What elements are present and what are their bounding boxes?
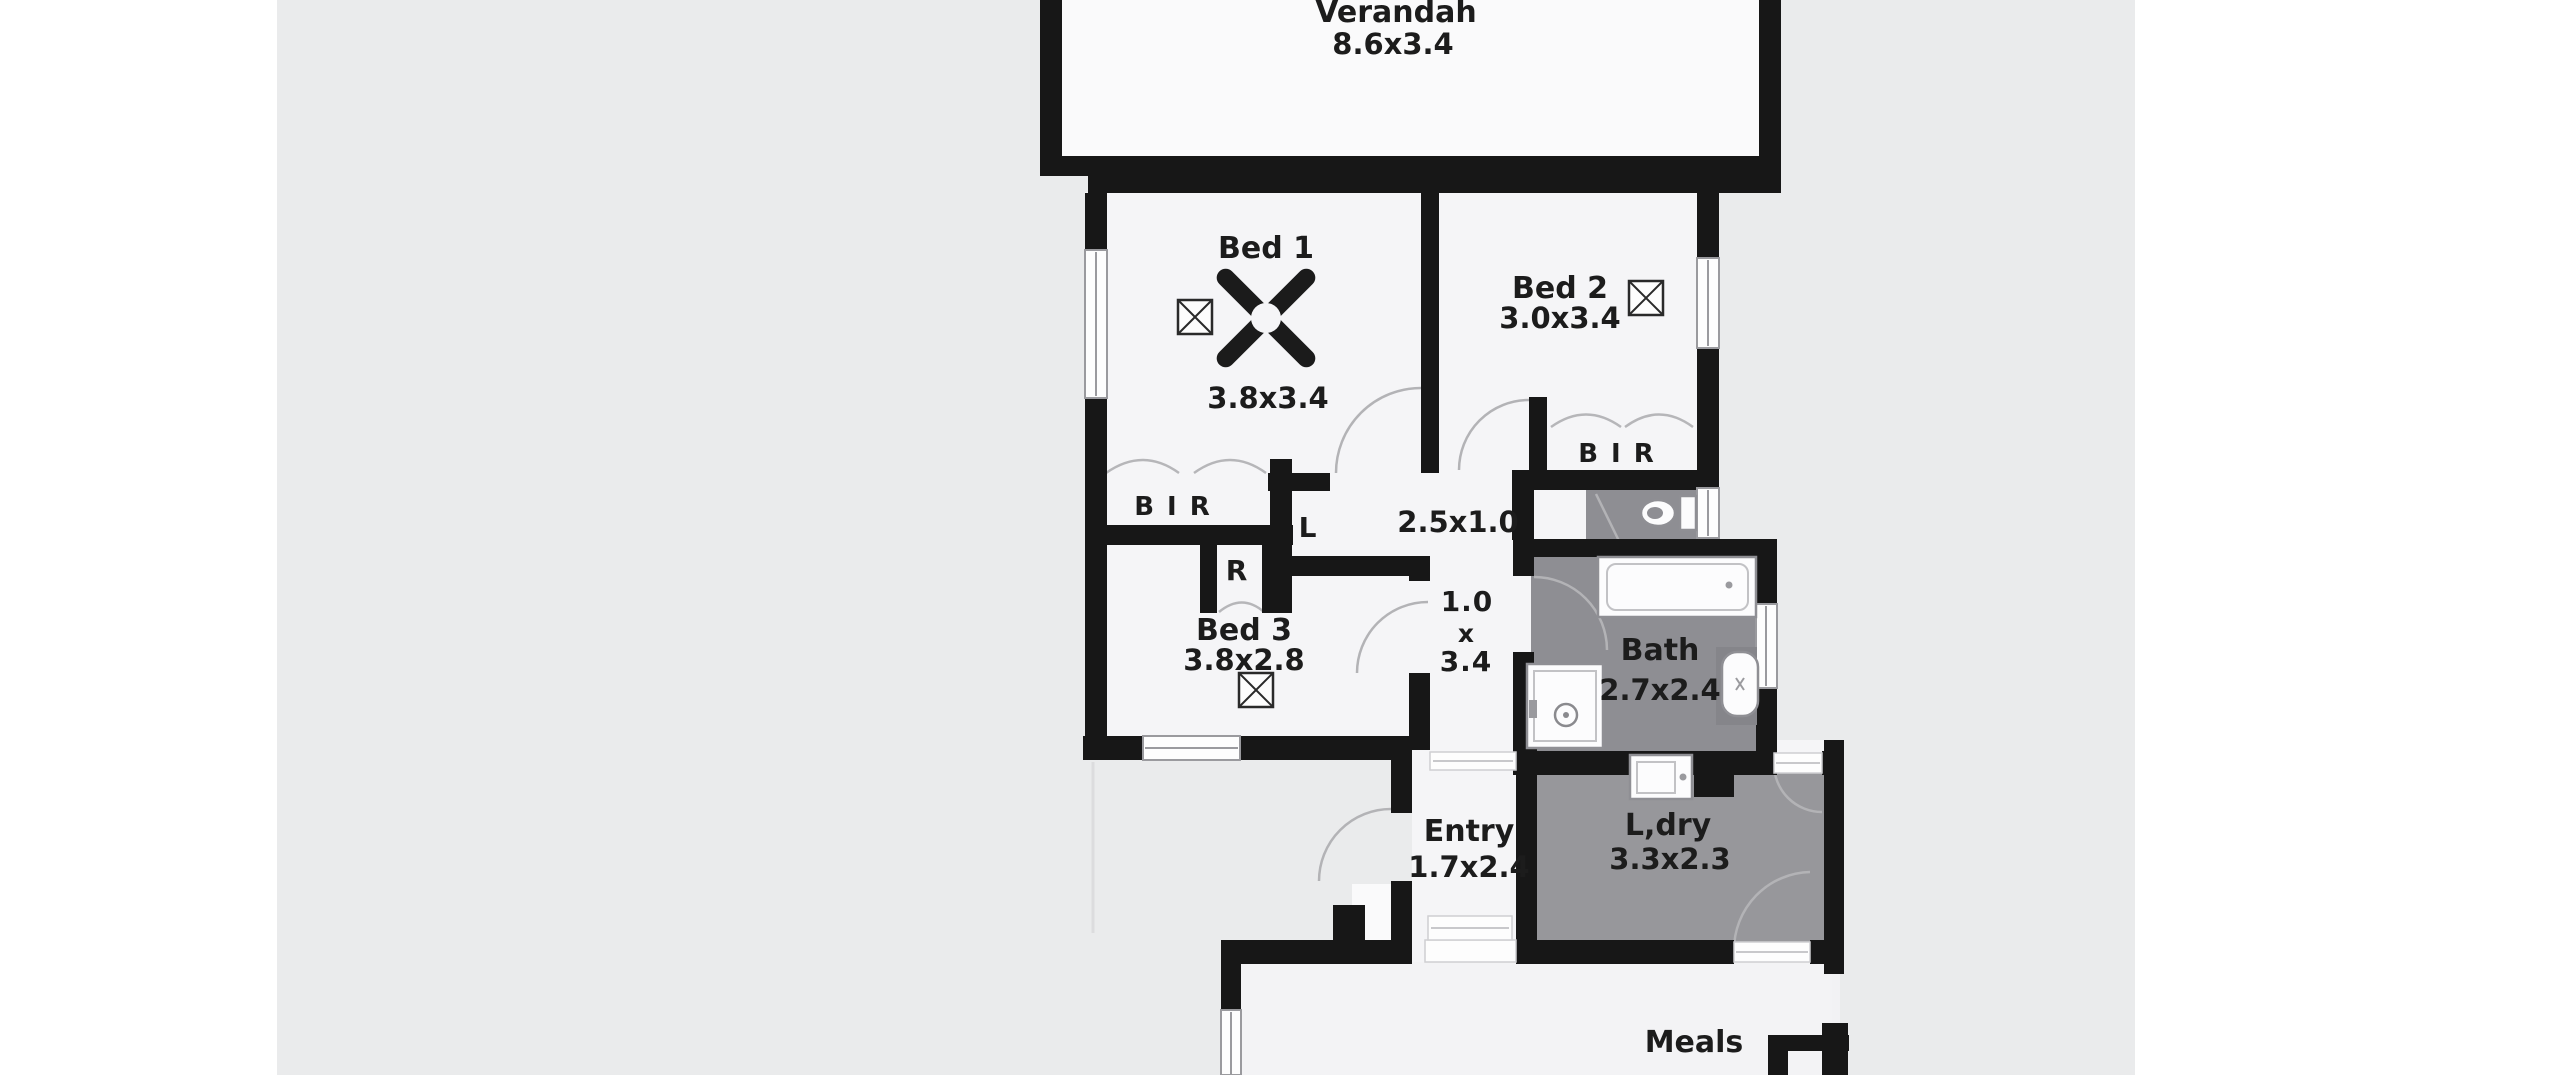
laundry-label: L,dry [1625,808,1712,843]
bed2-window [1697,258,1719,348]
meals-floor [1241,962,1837,1075]
bed1-dims: 3.8x3.4 [1207,381,1328,415]
entry-label: Entry [1424,814,1515,849]
bathtub-icon [1598,557,1756,617]
laundry-meals-opening [1734,942,1810,962]
entry-dims: 1.7x2.4 [1408,850,1529,884]
bed1-bed2-divider [1421,192,1439,473]
linen-west-wall [1270,459,1292,549]
bed3-window [1143,736,1240,760]
entry-west-wall-upper [1391,750,1412,813]
laundry-east-wall [1824,740,1844,974]
meals-north-wall-a [1228,940,1347,964]
west-wall-upper [1085,193,1107,250]
verandah-west-wall [1040,0,1062,176]
meals-label: Meals [1645,1025,1744,1060]
bed2-vent-icon [1629,281,1663,315]
hall-side-width: 1.0 [1441,585,1494,618]
verandah-dims: 8.6x3.4 [1332,27,1453,61]
floor-plan-page: Verandah 8.6x3.4 Bed 1 3.8x3.4 Bed 2 3.0… [0,0,2560,1075]
laundry-trough-icon [1630,755,1692,799]
bed2-dims: 3.0x3.4 [1499,301,1620,335]
bed1-window [1085,250,1107,398]
hall-side-sep: x [1458,619,1474,648]
bath-dims: 2.7x2.4 [1599,673,1720,707]
verandah-label: Verandah [1315,0,1476,30]
laundry-south-corner [1810,940,1844,964]
floor-plan-canvas: Verandah 8.6x3.4 Bed 1 3.8x3.4 Bed 2 3.0… [0,0,2560,1075]
bed3-dims: 3.8x2.8 [1183,643,1304,677]
house-north-wall [1088,170,1781,193]
meals-corner-wall-east [1822,1023,1848,1075]
bath-label: Bath [1621,633,1700,668]
bed2-robe-west-stub [1529,397,1547,470]
linen-label: L [1299,511,1318,544]
bed1-vent-icon [1178,300,1212,334]
bed1-label: Bed 1 [1218,231,1314,266]
entry-north-opening [1430,752,1516,770]
verandah-east-wall [1759,0,1781,176]
hall-south-wall [1270,556,1430,576]
bed2-bir-label: B I R [1578,439,1656,469]
robe-east-wall [1262,545,1292,613]
bed3-east-wall-lower [1409,673,1430,750]
laundry-rear-door-opening [1774,753,1822,773]
hall-side-length: 3.4 [1440,645,1493,678]
robe-label: R [1226,554,1249,587]
bed3-east-wall-upper [1409,556,1430,581]
bath-east-wall-a [1756,539,1777,604]
bed3-south-wall-b [1240,736,1412,760]
wc-window [1697,488,1719,538]
bath-north-wall [1513,539,1777,557]
bed1-south-wall [1268,473,1330,491]
bed2-robe-south-wall [1512,470,1719,490]
bath-west-wall-a [1513,540,1534,576]
bath-sink-icon [1716,647,1758,725]
meals-north-wall-b [1347,940,1412,964]
shower-icon [1527,664,1603,748]
laundry-dims: 3.3x2.3 [1609,842,1730,876]
entry-south-step [1425,916,1516,962]
hall-main-dims: 2.5x1.0 [1397,505,1518,539]
bed1-robe-south-wall [1097,525,1293,545]
west-wall-lower [1085,398,1107,740]
east-wall-upper [1697,193,1719,258]
bed3-south-wall-a [1083,736,1143,760]
robe-west-wall [1200,545,1217,613]
bed3-vent-icon [1239,673,1273,707]
meals-window [1221,1010,1241,1075]
laundry-south-wall [1516,940,1734,964]
laundry-north-block [1694,751,1734,797]
bed1-bir-label: B I R [1134,492,1212,522]
east-wall-mid [1697,348,1719,488]
meals-corner-wall-west [1768,1035,1788,1075]
meals-west-wall [1221,940,1241,1010]
